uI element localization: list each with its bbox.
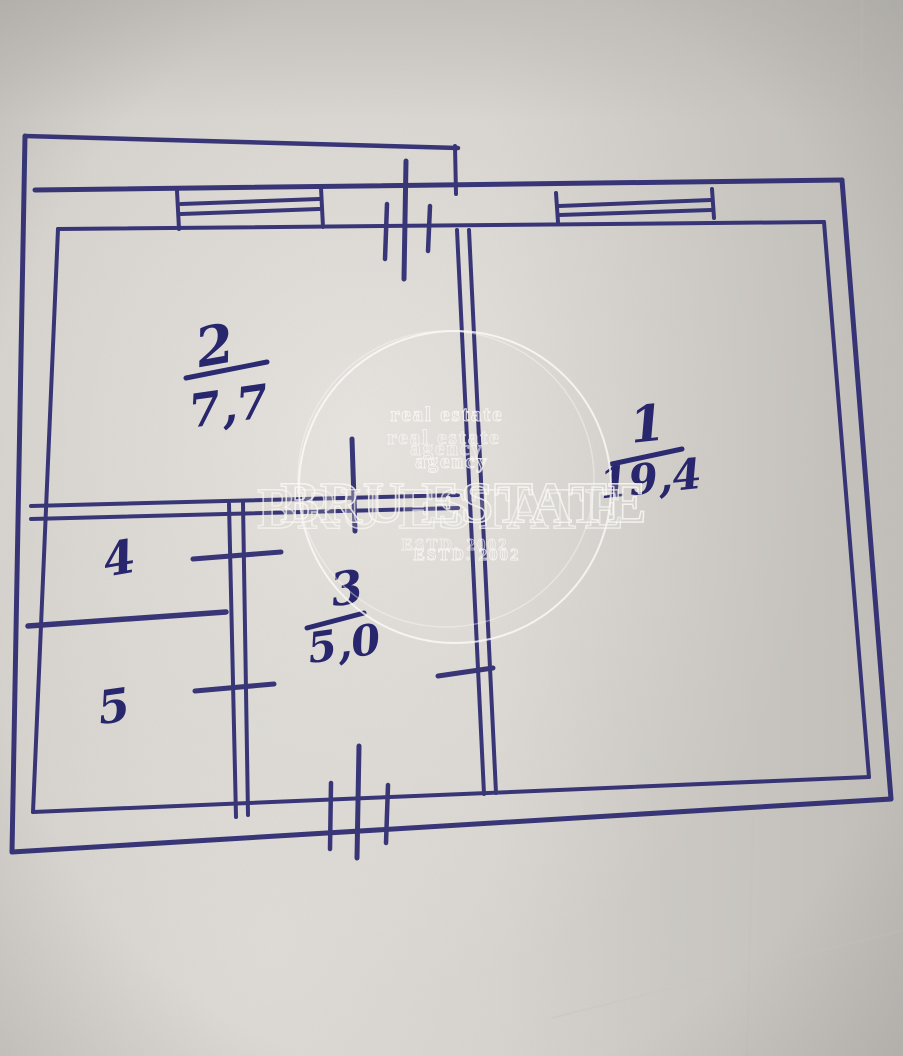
hash-tick: [357, 746, 359, 858]
room-3-area: 5,0: [304, 614, 383, 673]
hash-tick: [428, 206, 430, 251]
window-jamb: [712, 189, 714, 218]
window-jamb: [177, 191, 179, 229]
room-2-area: 7,7: [185, 374, 272, 439]
hash-tick: [385, 204, 387, 259]
floor-plan-photo: 2 7,7 1 19,4 3 5,0 4 5 real estate real …: [0, 0, 903, 1056]
hash-tick: [404, 161, 406, 279]
hash-tick: [386, 785, 388, 843]
hash-tick: [330, 783, 331, 849]
room-1-number: 1: [627, 392, 668, 454]
watermark-brand: BRU ESTATE: [280, 470, 647, 535]
window-jamb: [321, 188, 323, 227]
watermark-tagline-1: real estate: [390, 402, 503, 426]
watermark-estd: ESTD. 2002: [414, 545, 521, 564]
floor-plan-canvas: 2 7,7 1 19,4 3 5,0 4 5 real estate real …: [0, 0, 903, 1056]
